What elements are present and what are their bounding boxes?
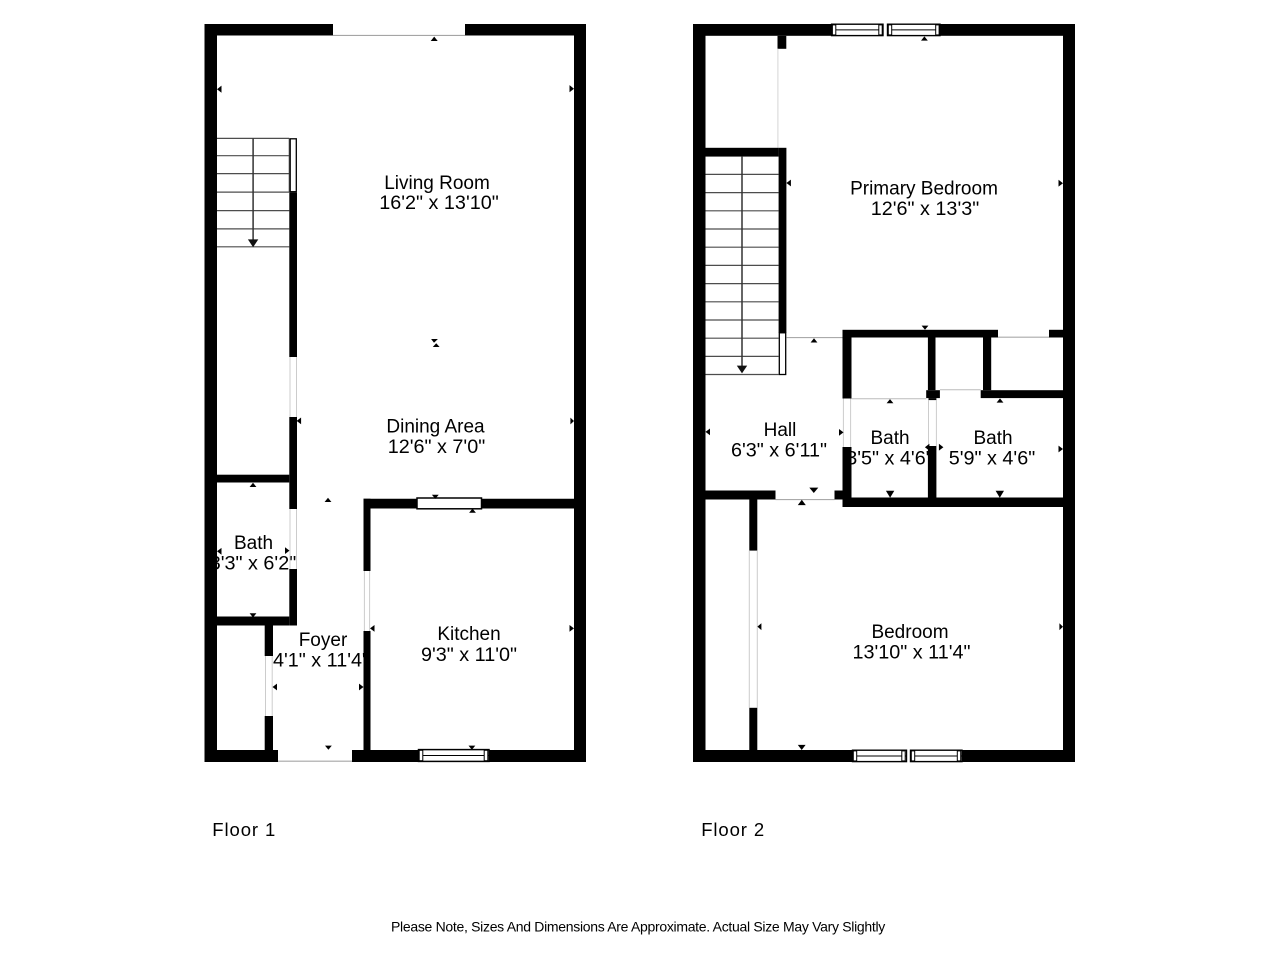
svg-text:Primary Bedroom: Primary Bedroom (850, 178, 998, 199)
svg-text:Please Note, Sizes And Dimensi: Please Note, Sizes And Dimensions Are Ap… (391, 918, 885, 934)
svg-text:Floor 1: Floor 1 (212, 819, 276, 840)
svg-text:12'6" x 7'0": 12'6" x 7'0" (388, 436, 486, 458)
svg-text:Bedroom: Bedroom (871, 622, 948, 643)
svg-text:Floor 2: Floor 2 (701, 819, 765, 840)
svg-text:Living Room: Living Room (384, 173, 490, 194)
svg-text:Kitchen: Kitchen (437, 624, 500, 645)
svg-text:16'2" x 13'10": 16'2" x 13'10" (379, 192, 499, 214)
svg-text:13'10" x 11'4": 13'10" x 11'4" (852, 642, 970, 664)
svg-text:Foyer: Foyer (299, 630, 348, 651)
svg-text:Bath: Bath (973, 428, 1012, 449)
svg-text:4'1" x 11'4": 4'1" x 11'4" (273, 650, 369, 672)
svg-text:9'3" x 11'0": 9'3" x 11'0" (421, 644, 517, 666)
svg-text:Dining Area: Dining Area (386, 416, 485, 437)
svg-text:6'3" x 6'11": 6'3" x 6'11" (731, 440, 827, 462)
svg-text:Bath: Bath (870, 428, 909, 449)
svg-text:5'9" x 4'6": 5'9" x 4'6" (949, 448, 1036, 470)
svg-text:Hall: Hall (764, 420, 797, 441)
svg-text:Bath: Bath (234, 533, 273, 554)
svg-text:3'3" x 6'2": 3'3" x 6'2" (210, 553, 297, 575)
svg-text:12'6" x 13'3": 12'6" x 13'3" (871, 198, 980, 220)
svg-text:3'5" x 4'6": 3'5" x 4'6" (846, 448, 933, 470)
